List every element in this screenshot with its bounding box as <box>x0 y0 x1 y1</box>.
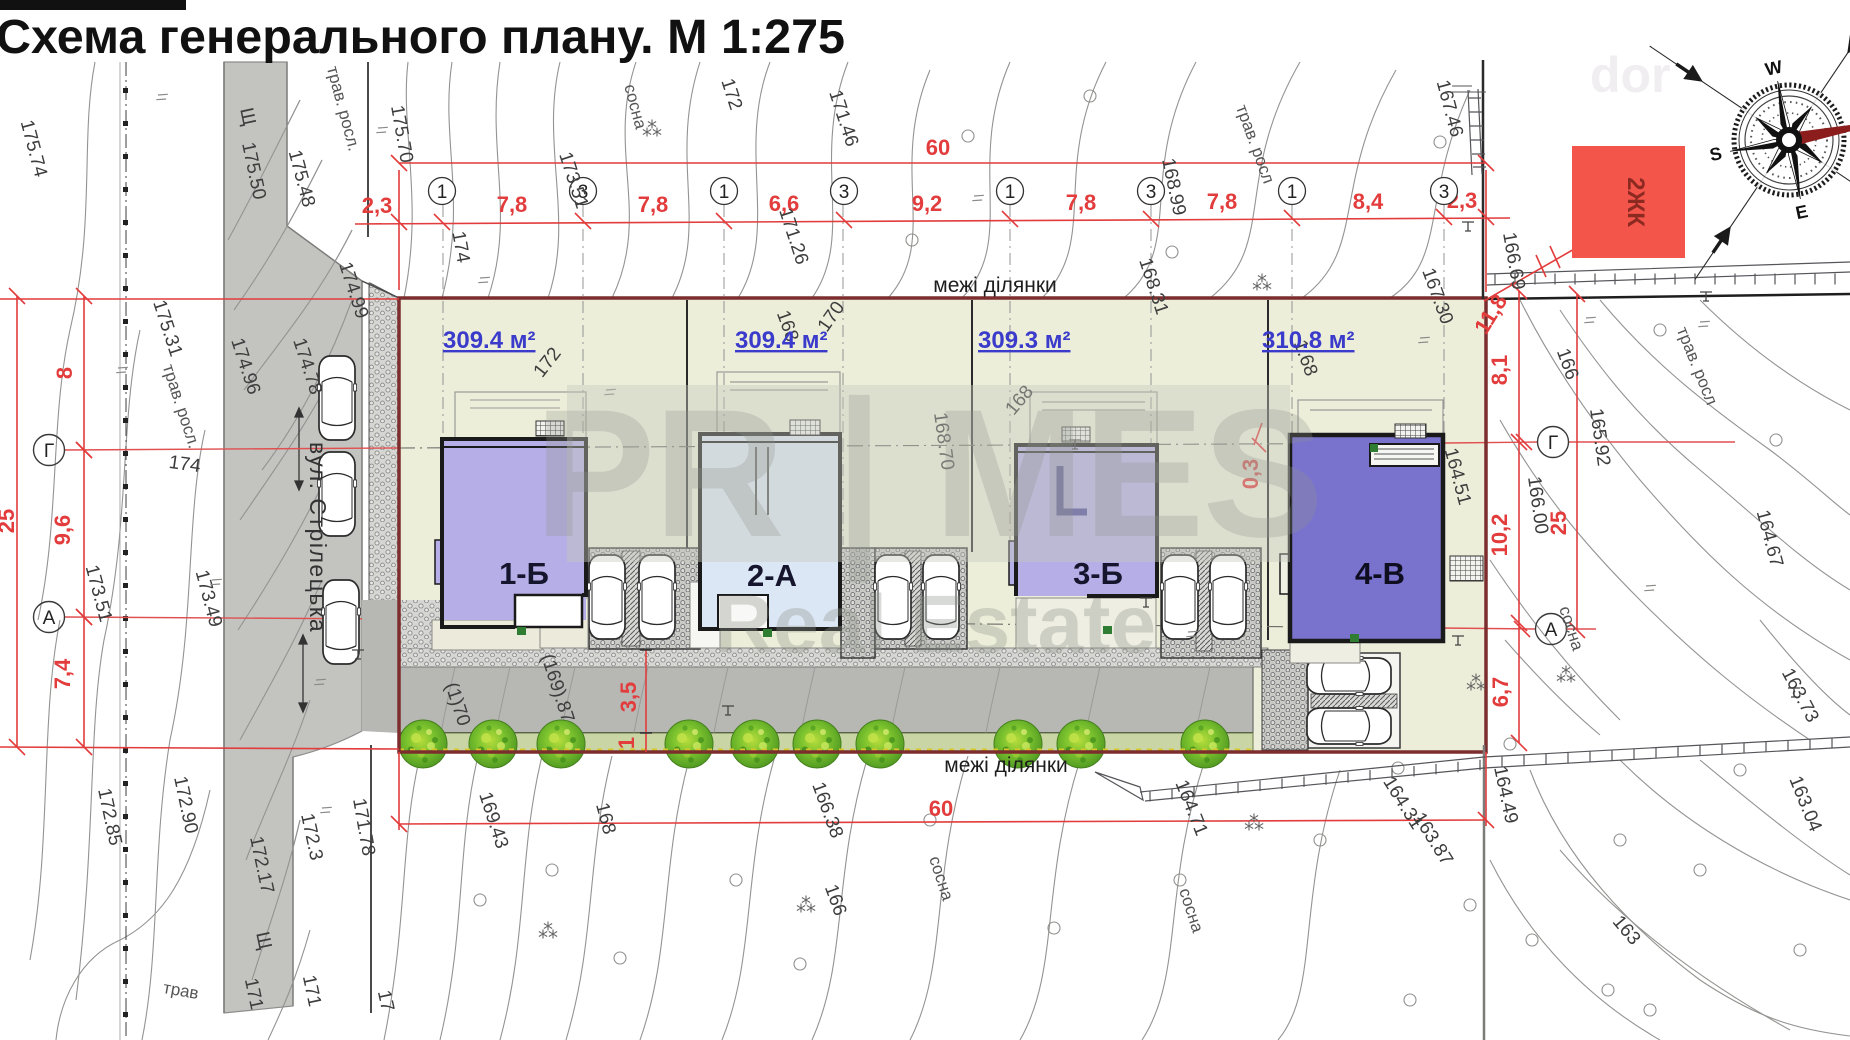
svg-text:8,4: 8,4 <box>1353 189 1384 214</box>
svg-text:Г: Г <box>44 441 54 462</box>
svg-text:174: 174 <box>168 452 203 477</box>
svg-text:Real Estate: Real Estate <box>714 579 1156 670</box>
svg-text:⁂: ⁂ <box>642 119 662 141</box>
svg-text:17: 17 <box>373 988 398 1013</box>
svg-text:1: 1 <box>437 182 448 203</box>
svg-text:2,3: 2,3 <box>362 193 393 218</box>
svg-text:вул. Стрілецька: вул. Стрілецька <box>305 442 331 633</box>
svg-text:3,5: 3,5 <box>616 682 641 713</box>
svg-text:⁂: ⁂ <box>538 921 558 943</box>
svg-text:60: 60 <box>926 135 950 160</box>
svg-text:межі ділянки: межі ділянки <box>933 274 1057 297</box>
svg-text:3: 3 <box>839 182 850 203</box>
svg-text:10,2: 10,2 <box>1487 514 1512 557</box>
svg-text:А: А <box>43 608 56 629</box>
svg-text:7,8: 7,8 <box>638 192 669 217</box>
svg-text:межі ділянки: межі ділянки <box>944 754 1068 777</box>
svg-text:9,2: 9,2 <box>912 191 943 216</box>
svg-text:dor: dor <box>1590 47 1671 103</box>
svg-text:1: 1 <box>1287 182 1298 203</box>
svg-text:3: 3 <box>1146 182 1157 203</box>
svg-text:⁂: ⁂ <box>1244 813 1264 835</box>
svg-text:⁂: ⁂ <box>1556 665 1576 687</box>
svg-text:PR❘MES: PR❘MES <box>534 371 1322 583</box>
svg-text:309.4 м²: 309.4 м² <box>443 327 535 354</box>
svg-text:7,8: 7,8 <box>1207 189 1238 214</box>
svg-text:9,6: 9,6 <box>50 515 75 546</box>
svg-text:⁂: ⁂ <box>1252 273 1272 295</box>
svg-text:6,7: 6,7 <box>1488 677 1513 708</box>
svg-text:8: 8 <box>52 367 77 379</box>
svg-text:7,4: 7,4 <box>50 658 75 689</box>
svg-text:2ЖК: 2ЖК <box>1622 177 1649 227</box>
svg-text:⁂: ⁂ <box>796 895 816 917</box>
svg-text:3: 3 <box>1439 182 1450 203</box>
svg-text:25: 25 <box>0 509 19 533</box>
svg-text:309.4 м²: 309.4 м² <box>735 327 827 354</box>
svg-text:Схема генерального плану. М 1:: Схема генерального плану. М 1:275 <box>0 10 845 64</box>
svg-text:7,8: 7,8 <box>1066 190 1097 215</box>
svg-text:1: 1 <box>614 737 639 749</box>
svg-text:7,8: 7,8 <box>497 192 528 217</box>
svg-text:1: 1 <box>719 182 730 203</box>
svg-text:4-В: 4-В <box>1355 556 1405 591</box>
svg-text:310.8 м²: 310.8 м² <box>1262 327 1354 354</box>
svg-text:8,1: 8,1 <box>1487 355 1512 386</box>
svg-text:309.3 м²: 309.3 м² <box>978 327 1070 354</box>
svg-text:А: А <box>1545 620 1558 641</box>
svg-text:60: 60 <box>929 796 953 821</box>
svg-text:⁂: ⁂ <box>1466 673 1486 695</box>
svg-text:Г: Г <box>1548 433 1558 454</box>
svg-text:1: 1 <box>1005 182 1016 203</box>
